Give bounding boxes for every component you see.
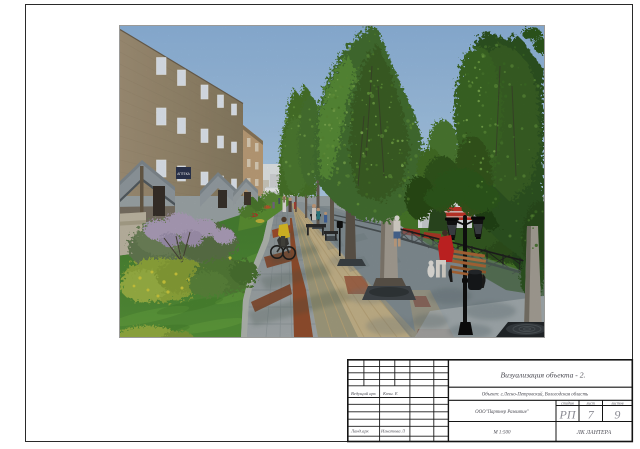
svg-text:Кочн. Е: Кочн. Е	[382, 391, 398, 396]
svg-text:М 1:500: М 1:500	[492, 430, 511, 435]
svg-text:стадия: стадия	[561, 400, 574, 405]
svg-text:лист: лист	[585, 400, 595, 405]
svg-text:Ланд.арх: Ланд.арх	[350, 428, 369, 433]
svg-text:Игнатова Л: Игнатова Л	[380, 428, 406, 433]
svg-text:ООО"Партнер Развитие": ООО"Партнер Развитие"	[475, 410, 530, 415]
svg-text:Объект: г.Лесно-Петровский,: Объект: г.Лесно-Петровский, Вологодская …	[482, 391, 589, 397]
svg-text:Ведущий арх: Ведущий арх	[351, 391, 376, 396]
svg-text:Визуализация объекта - 2.: Визуализация объекта - 2.	[501, 370, 586, 379]
svg-text:7: 7	[588, 407, 595, 421]
svg-text:РП: РП	[559, 407, 577, 421]
svg-text:листов: листов	[610, 400, 623, 405]
svg-text:9: 9	[614, 407, 620, 421]
svg-text:ЛК ЛАНТЕРА: ЛК ЛАНТЕРА	[576, 430, 612, 436]
